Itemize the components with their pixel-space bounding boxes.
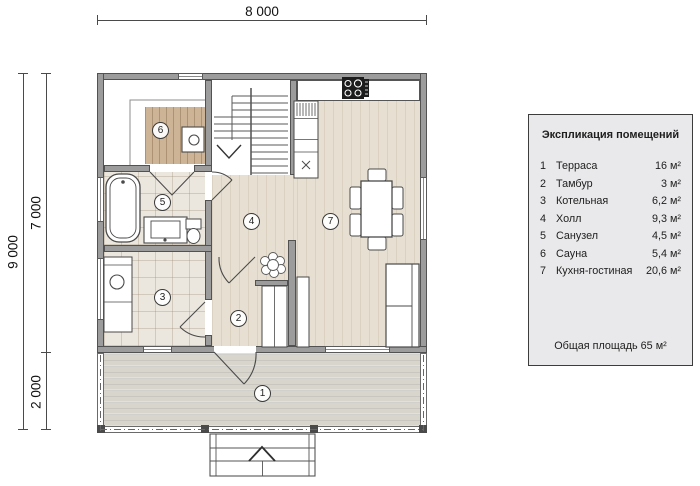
dimension-width-label: 8 000 [245, 4, 279, 19]
legend-room-number: 3 [540, 193, 556, 211]
legend-room-area: 4,5 м² [652, 228, 681, 246]
legend-room-name: Котельная [556, 193, 652, 211]
terrace-railing-right [420, 353, 427, 433]
legend-room-number: 6 [540, 246, 556, 264]
room-marker-label: 5 [160, 197, 166, 208]
steps-up-arrow-icon [249, 447, 275, 461]
legend-row: 5 Санузел 4,5 м² [540, 228, 681, 246]
wall-sauna-right [205, 80, 212, 172]
wall-wardrobe-stub [255, 280, 288, 286]
legend-room-area: 16 м² [655, 158, 681, 176]
room-marker-boiler: 3 [154, 289, 171, 306]
legend-row: 1 Терраса 16 м² [540, 158, 681, 176]
legend-room-number: 7 [540, 263, 556, 281]
room-marker-label: 6 [158, 125, 164, 136]
room-marker-bathroom: 5 [154, 194, 171, 211]
staircase [214, 88, 288, 175]
terrace-post [419, 425, 427, 433]
terrace-railing-left [97, 353, 104, 433]
dimension-line-inner-height [46, 73, 47, 430]
legend-row: 4 Холл 9,3 м² [540, 211, 681, 229]
dim-tick [18, 429, 28, 430]
dim-tick [18, 73, 28, 74]
kitchen-counter [297, 80, 420, 101]
legend-row: 7 Кухня-гостиная 20,6 м² [540, 263, 681, 281]
legend-row: 6 Сауна 5,4 м² [540, 246, 681, 264]
stairs-down-arrow-icon [217, 145, 241, 158]
entrance-steps [210, 434, 315, 476]
dimension-total-height-label: 9 000 [6, 235, 21, 269]
floor-hall-tambour [212, 175, 297, 346]
window-top [178, 73, 203, 80]
wall-top [97, 73, 427, 80]
legend-room-area: 5,4 м² [652, 246, 681, 264]
room-marker-tambour: 2 [230, 310, 247, 327]
room-marker-hall: 4 [243, 213, 260, 230]
legend-room-name: Тамбур [556, 176, 661, 194]
room-marker-label: 4 [249, 216, 255, 227]
legend-room-area: 3 м² [661, 176, 681, 194]
legend-row: 2 Тамбур 3 м² [540, 176, 681, 194]
legend-room-number: 4 [540, 211, 556, 229]
legend-panel: Экспликация помещений 1 Терраса 16 м² 2 … [528, 114, 693, 366]
room-marker-sauna: 6 [152, 122, 169, 139]
dimension-main-height-label: 7 000 [29, 196, 44, 230]
legend-room-area: 9,3 м² [652, 211, 681, 229]
wall-stairwell-right [290, 80, 297, 175]
legend-room-number: 5 [540, 228, 556, 246]
room-marker-terrace: 1 [254, 385, 271, 402]
terrace-railing-bottom [97, 426, 427, 433]
wall-sauna-bath [104, 165, 150, 172]
legend-total-area: Общая площадь 65 м² [529, 340, 692, 352]
dim-tick [41, 73, 51, 74]
legend-room-area: 6,2 м² [652, 193, 681, 211]
dimension-terrace-height-label: 2 000 [29, 375, 44, 409]
terrace-post [97, 425, 105, 433]
wall-sauna-bath-right [194, 165, 212, 172]
entry-door-opening [214, 346, 256, 353]
room-marker-label: 3 [160, 292, 166, 303]
window-bottom-living [325, 346, 390, 353]
room-marker-label: 2 [236, 313, 242, 324]
legend-room-name: Сауна [556, 246, 652, 264]
legend-room-name: Терраса [556, 158, 655, 176]
legend-room-number: 1 [540, 158, 556, 176]
dimension-line-total-height [23, 73, 24, 430]
floor-bathroom [104, 172, 205, 245]
wall-hall-left-low [205, 335, 212, 346]
legend-room-name: Кухня-гостиная [556, 263, 646, 281]
window-left-boiler [97, 258, 104, 320]
window-left-bathroom [97, 177, 104, 222]
floor-plan-sheet: 8 000 9 000 7 000 2 000 1 2 3 4 5 6 7 Эк… [0, 0, 700, 486]
terrace-post [310, 425, 318, 433]
terrace-post [201, 425, 209, 433]
window-bottom-boiler [143, 346, 172, 353]
room-marker-label: 1 [260, 388, 266, 399]
dimension-line-top [97, 20, 427, 21]
dim-tick [426, 15, 427, 25]
wall-wardrobe [288, 240, 296, 346]
legend-room-number: 2 [540, 176, 556, 194]
floor-kitchen-living [297, 80, 420, 346]
wall-bath-boiler [104, 245, 212, 252]
legend-row: 3 Котельная 6,2 м² [540, 193, 681, 211]
room-marker-kitchen: 7 [322, 213, 339, 230]
legend-title: Экспликация помещений [540, 129, 681, 141]
dim-tick [41, 352, 51, 353]
legend-room-name: Холл [556, 211, 652, 229]
dim-tick [41, 429, 51, 430]
legend-room-area: 20,6 м² [646, 263, 681, 281]
legend-room-name: Санузел [556, 228, 652, 246]
window-right-living [420, 177, 427, 240]
dim-tick [97, 15, 98, 25]
room-marker-label: 7 [328, 216, 334, 227]
